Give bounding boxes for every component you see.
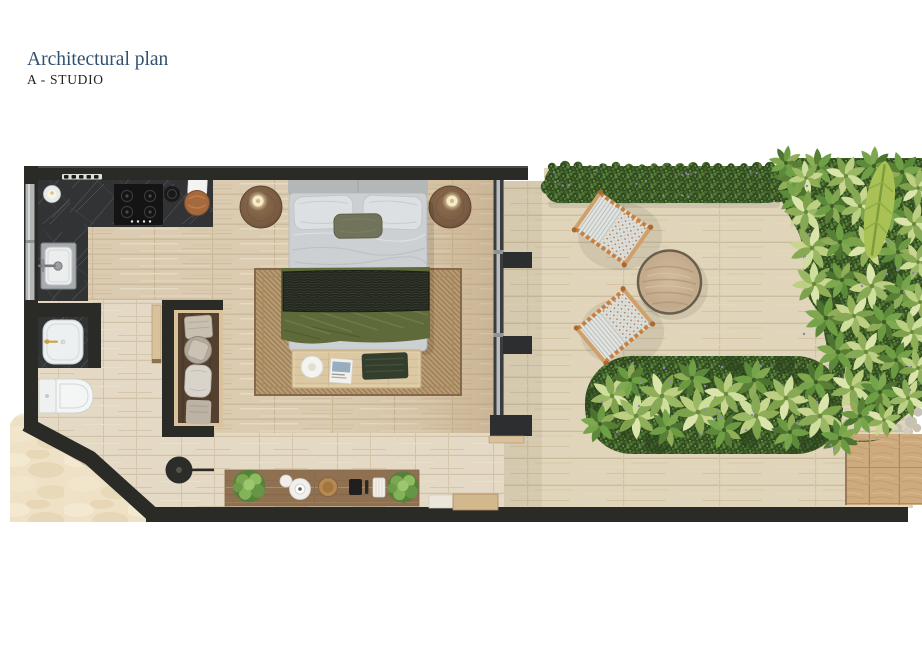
svg-text:A - STUDIO: A - STUDIO (27, 72, 104, 87)
svg-text:Architectural plan: Architectural plan (27, 49, 169, 70)
